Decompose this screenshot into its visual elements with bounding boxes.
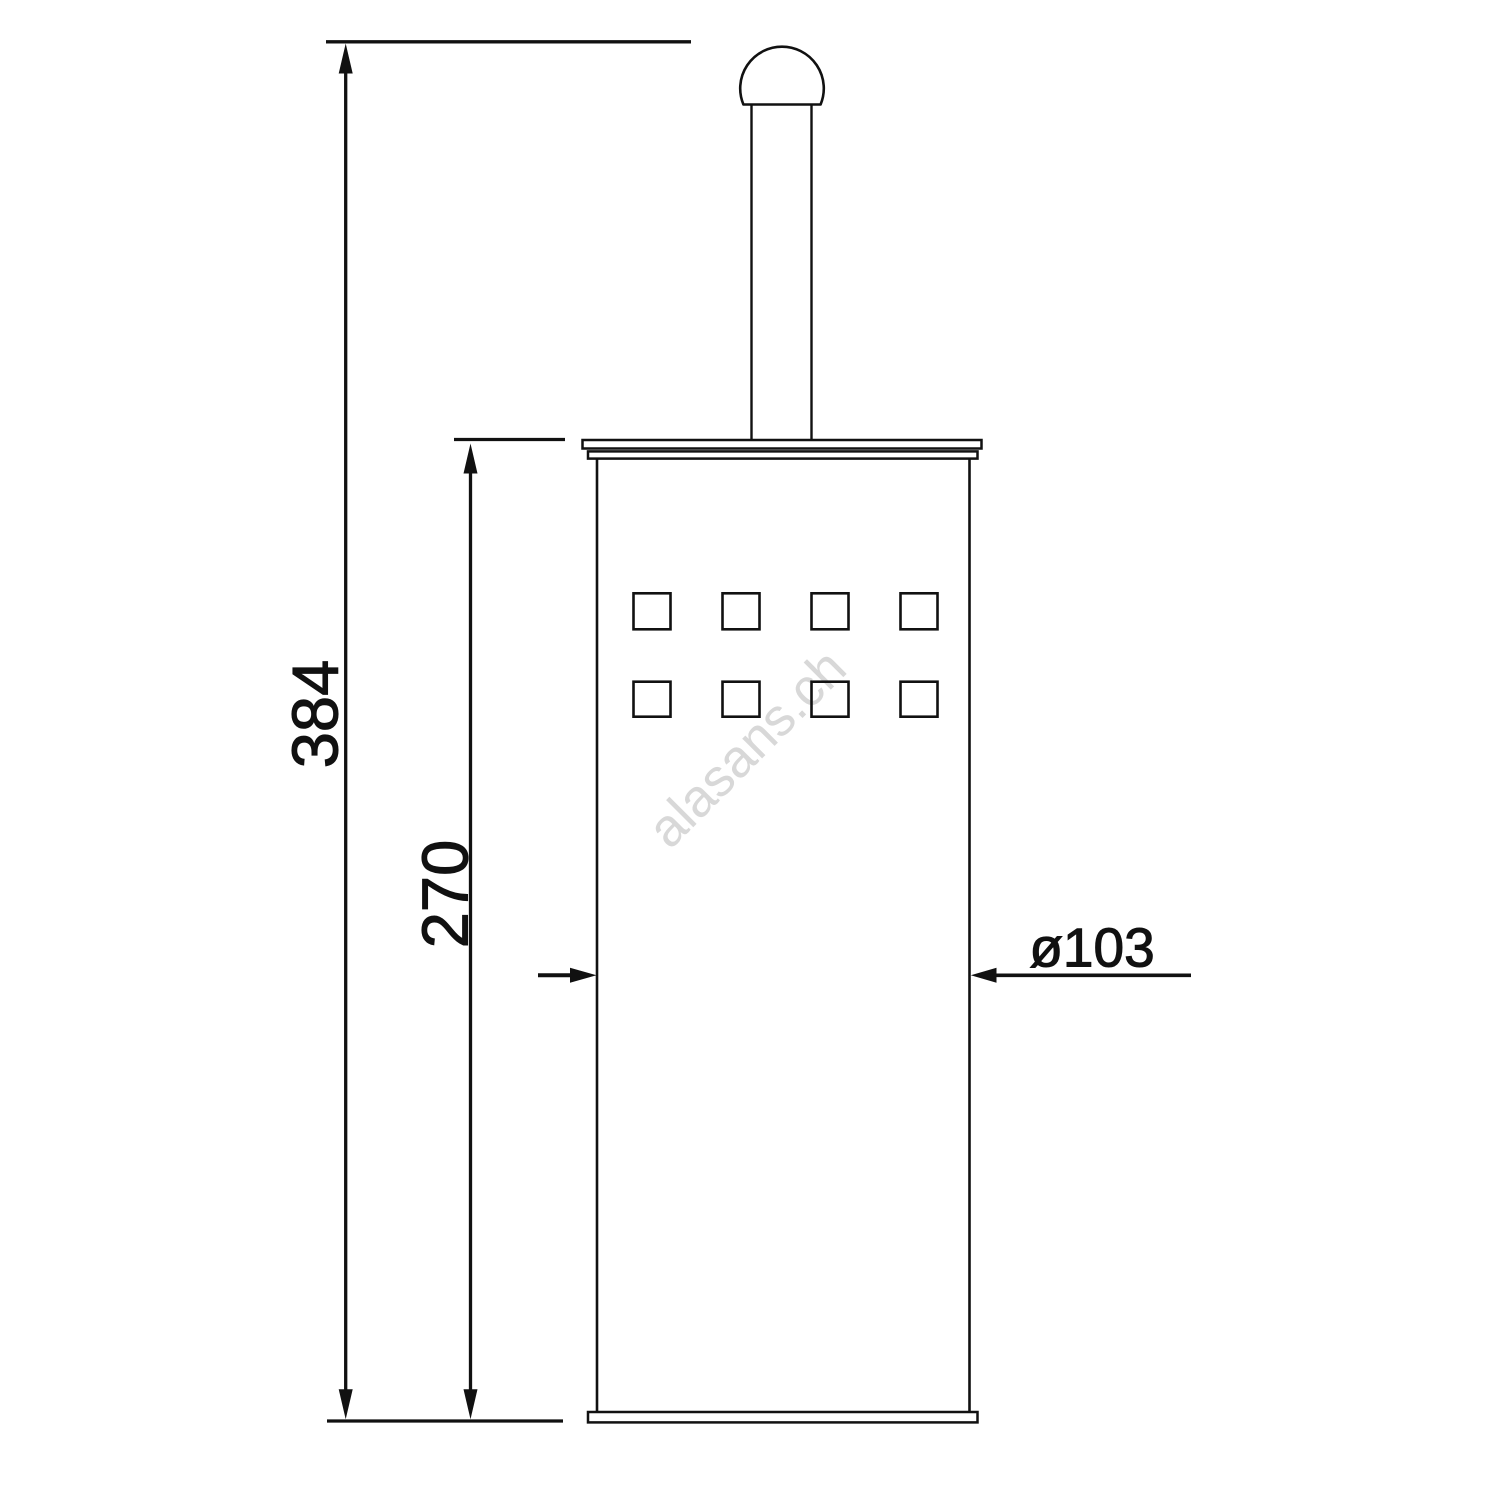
svg-text:ø103: ø103 bbox=[1029, 917, 1154, 979]
svg-text:384: 384 bbox=[279, 660, 352, 768]
svg-text:270: 270 bbox=[409, 840, 482, 948]
